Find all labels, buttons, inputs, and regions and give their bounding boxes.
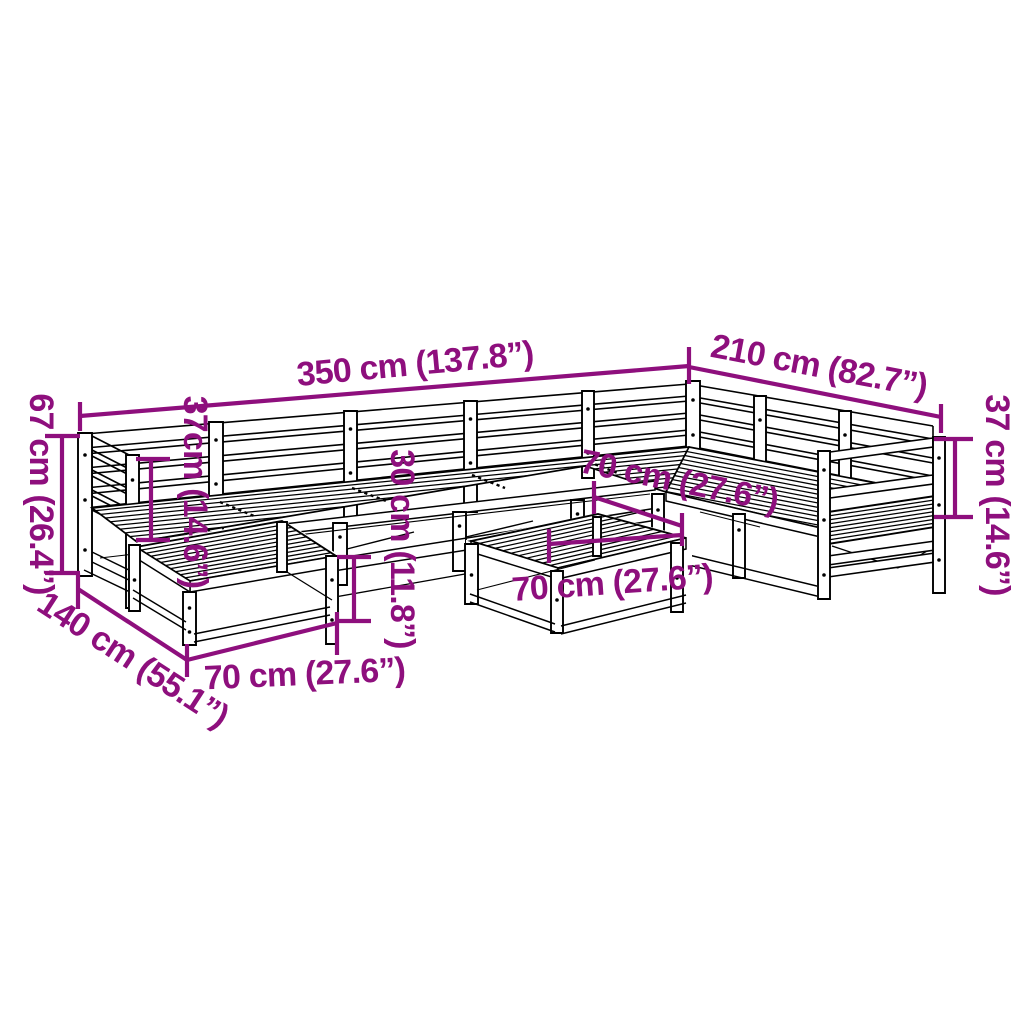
svg-text:30 cm (11.8”): 30 cm (11.8”) bbox=[383, 449, 421, 648]
svg-text:37 cm (14.6”): 37 cm (14.6”) bbox=[978, 394, 1016, 595]
svg-text:67 cm (26.4”): 67 cm (26.4”) bbox=[22, 393, 60, 594]
svg-text:37cm (14.6”): 37cm (14.6”) bbox=[176, 396, 214, 589]
